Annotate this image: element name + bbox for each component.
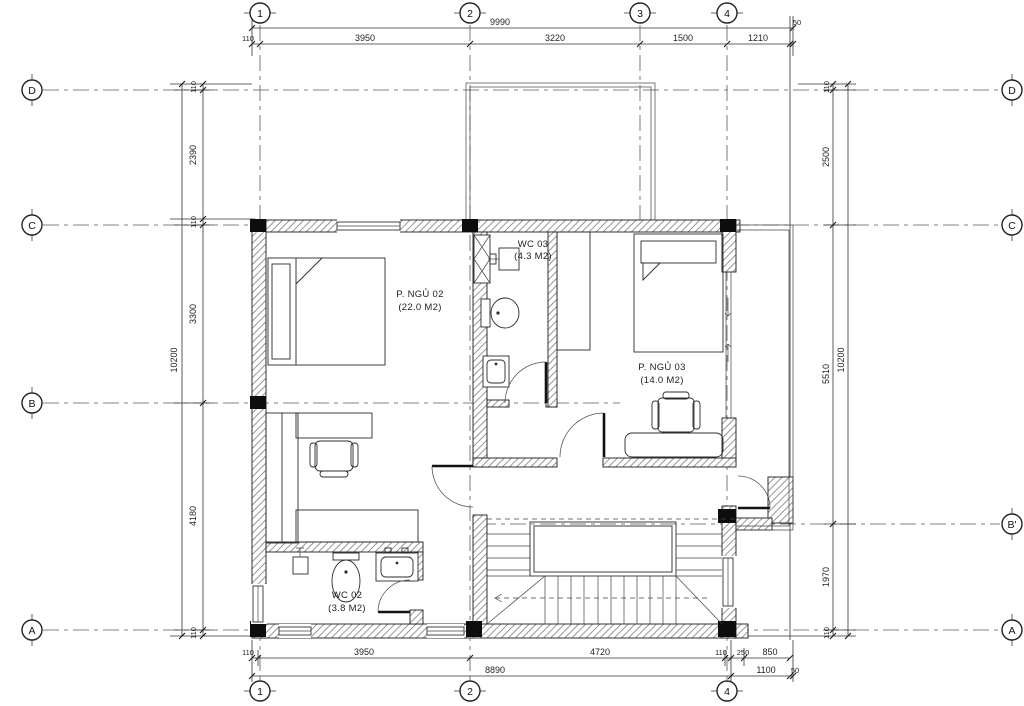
svg-text:D: D bbox=[1008, 85, 1016, 97]
wall-balcony-south bbox=[736, 518, 772, 530]
grid-bubble-left-B: B bbox=[22, 387, 42, 419]
svg-text:3: 3 bbox=[637, 8, 643, 20]
window-right bbox=[721, 556, 737, 608]
floor-plan-canvas: 1 2 3 4 1 2 4 D C B A D C B' A 9990 110 … bbox=[0, 0, 1024, 706]
room-area-wc03: (4.3 M2) bbox=[514, 251, 552, 262]
svg-text:110: 110 bbox=[189, 216, 198, 228]
svg-text:D: D bbox=[28, 85, 36, 97]
room-area-p-ngu-03: (14.0 M2) bbox=[640, 375, 683, 386]
svg-text:110: 110 bbox=[242, 34, 254, 43]
svg-text:C: C bbox=[1008, 220, 1016, 232]
sink-wc02 bbox=[376, 548, 418, 581]
svg-text:A: A bbox=[28, 625, 35, 637]
window-bottom-left bbox=[279, 624, 311, 638]
svg-text:110: 110 bbox=[822, 627, 831, 639]
grid-bubble-bottom-2: 2 bbox=[454, 681, 486, 701]
door-wc02 bbox=[378, 580, 410, 612]
svg-text:5510: 5510 bbox=[821, 364, 831, 384]
dim-left-overall: 10200 bbox=[169, 347, 179, 372]
svg-text:110: 110 bbox=[822, 81, 831, 93]
svg-text:110: 110 bbox=[189, 81, 198, 93]
svg-text:50: 50 bbox=[793, 18, 801, 27]
svg-text:4: 4 bbox=[724, 686, 730, 698]
doors bbox=[378, 362, 770, 612]
grid-bubble-right-A: A bbox=[1002, 614, 1022, 646]
svg-text:110: 110 bbox=[715, 648, 727, 657]
grid-bubble-right-D: D bbox=[1002, 74, 1022, 106]
svg-text:4180: 4180 bbox=[188, 506, 198, 526]
desk-p-ngu-03 bbox=[625, 433, 723, 457]
floor-plan-page: 1 2 3 4 1 2 4 D C B A D C B' A 9990 110 … bbox=[0, 0, 1024, 706]
grid-bubble-top-1: 1 bbox=[244, 3, 276, 23]
grid-lines bbox=[43, 25, 1000, 680]
vent-shaft bbox=[474, 235, 490, 283]
svg-text:C: C bbox=[28, 220, 36, 232]
grid-bubble-right-C: C bbox=[1002, 209, 1022, 241]
svg-text:2: 2 bbox=[467, 8, 473, 20]
desk-study bbox=[296, 413, 372, 438]
wall-study-south bbox=[266, 542, 423, 552]
stair-landing bbox=[530, 522, 676, 576]
svg-text:4: 4 bbox=[724, 8, 730, 20]
chair-study bbox=[310, 441, 358, 477]
wall-bottom bbox=[252, 624, 748, 638]
door-wc03 bbox=[505, 362, 546, 403]
chair-p-ngu-03 bbox=[652, 392, 700, 432]
sink-wc03 bbox=[483, 356, 509, 387]
door-suite-02 bbox=[432, 466, 473, 507]
door-balcony bbox=[738, 476, 770, 508]
svg-text:2: 2 bbox=[467, 686, 473, 698]
bed-p-ngu-03 bbox=[634, 234, 723, 352]
bed-p-ngu-02 bbox=[268, 258, 385, 365]
svg-text:B': B' bbox=[1007, 519, 1016, 531]
cabinet-study bbox=[296, 510, 418, 542]
svg-text:1500: 1500 bbox=[673, 33, 693, 43]
room-label-p-ngu-03: P. NGỦ 03 bbox=[638, 361, 685, 373]
wall-wc03-south-left bbox=[487, 400, 509, 407]
svg-text:1100: 1100 bbox=[756, 665, 775, 675]
grid-bubble-bottom-1: 1 bbox=[244, 681, 276, 701]
roof-void-outline bbox=[466, 83, 655, 222]
dim-right-overall: 10200 bbox=[836, 347, 846, 372]
svg-text:B: B bbox=[28, 398, 35, 410]
svg-text:850: 850 bbox=[762, 647, 777, 657]
grid-bubble-top-3: 3 bbox=[624, 3, 656, 23]
svg-text:3300: 3300 bbox=[188, 304, 198, 324]
room-label-wc02: WC 02 bbox=[332, 590, 363, 601]
door-p-ngu-03 bbox=[560, 413, 604, 457]
room-area-p-ngu-02: (22.0 M2) bbox=[398, 302, 441, 313]
wall-left bbox=[252, 220, 266, 638]
grid-bubble-left-D: D bbox=[22, 74, 42, 106]
svg-text:2500: 2500 bbox=[821, 147, 831, 167]
svg-text:4720: 4720 bbox=[590, 647, 610, 657]
wall-stair-west bbox=[473, 515, 487, 624]
window-top bbox=[337, 219, 400, 233]
grid-bubble-bottom-4: 4 bbox=[711, 681, 743, 701]
svg-text:250: 250 bbox=[737, 648, 750, 657]
grid-bubble-right-B-prime: B' bbox=[1002, 508, 1022, 540]
svg-text:A: A bbox=[1008, 625, 1015, 637]
svg-text:1210: 1210 bbox=[748, 33, 768, 43]
room-label-p-ngu-02: P. NGỦ 02 bbox=[396, 288, 443, 300]
svg-text:3950: 3950 bbox=[354, 647, 374, 657]
svg-text:8890: 8890 bbox=[485, 665, 505, 675]
svg-text:3950: 3950 bbox=[355, 33, 375, 43]
room-label-wc03: WC 03 bbox=[518, 239, 549, 250]
svg-text:110: 110 bbox=[189, 627, 198, 639]
wall-wc02-east-lower bbox=[410, 610, 423, 624]
svg-text:2390: 2390 bbox=[188, 145, 198, 165]
svg-text:110: 110 bbox=[242, 648, 254, 657]
wardrobe-p-ngu-03 bbox=[557, 232, 590, 350]
window-left bbox=[251, 584, 267, 624]
svg-text:50: 50 bbox=[791, 666, 799, 675]
wall-right-mid bbox=[722, 418, 736, 464]
columns bbox=[250, 219, 736, 637]
svg-text:1: 1 bbox=[257, 8, 263, 20]
window-bottom-mid bbox=[427, 624, 464, 638]
toilet-wc03 bbox=[481, 298, 519, 328]
wall-top bbox=[252, 220, 740, 232]
svg-text:1970: 1970 bbox=[821, 567, 831, 587]
stair-treads bbox=[545, 576, 676, 624]
room-area-wc02: (3.8 M2) bbox=[328, 603, 366, 614]
wardrobe-study bbox=[266, 413, 298, 543]
grid-bubble-top-4: 4 bbox=[711, 3, 743, 23]
svg-text:3220: 3220 bbox=[545, 33, 565, 43]
grid-bubble-left-A: A bbox=[22, 614, 42, 646]
wall-hall-south-west bbox=[473, 458, 557, 467]
dim-top-overall: 9990 bbox=[490, 17, 510, 27]
windows bbox=[251, 219, 737, 638]
svg-text:1: 1 bbox=[257, 686, 263, 698]
grid-bubble-top-2: 2 bbox=[454, 3, 486, 23]
grid-bubble-left-C: C bbox=[22, 209, 42, 241]
staircase bbox=[487, 519, 736, 624]
wall-hall-south-east bbox=[603, 458, 736, 467]
dimension-lines bbox=[170, 16, 856, 682]
